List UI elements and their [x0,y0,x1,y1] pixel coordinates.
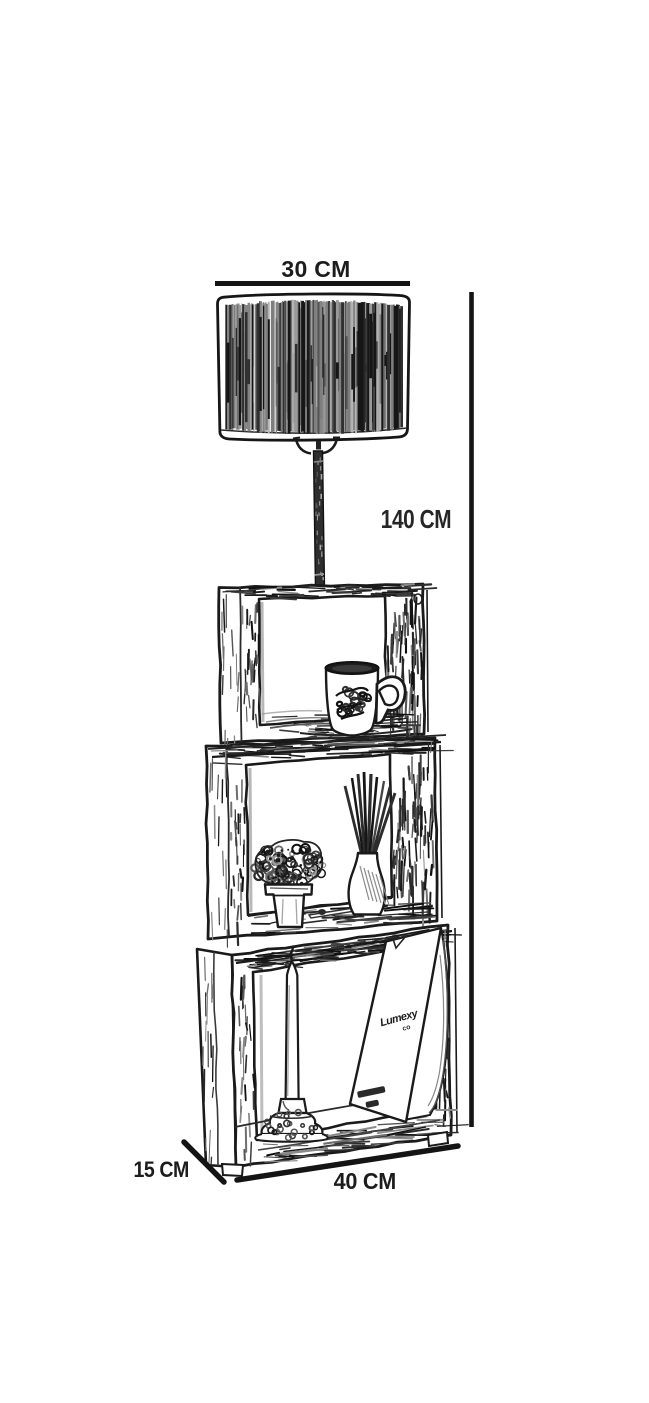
svg-text:30 CM: 30 CM [281,256,350,282]
svg-text:15 CM: 15 CM [134,1158,189,1182]
svg-text:140 CM: 140 CM [381,505,451,534]
svg-text:40 CM: 40 CM [334,1168,396,1194]
